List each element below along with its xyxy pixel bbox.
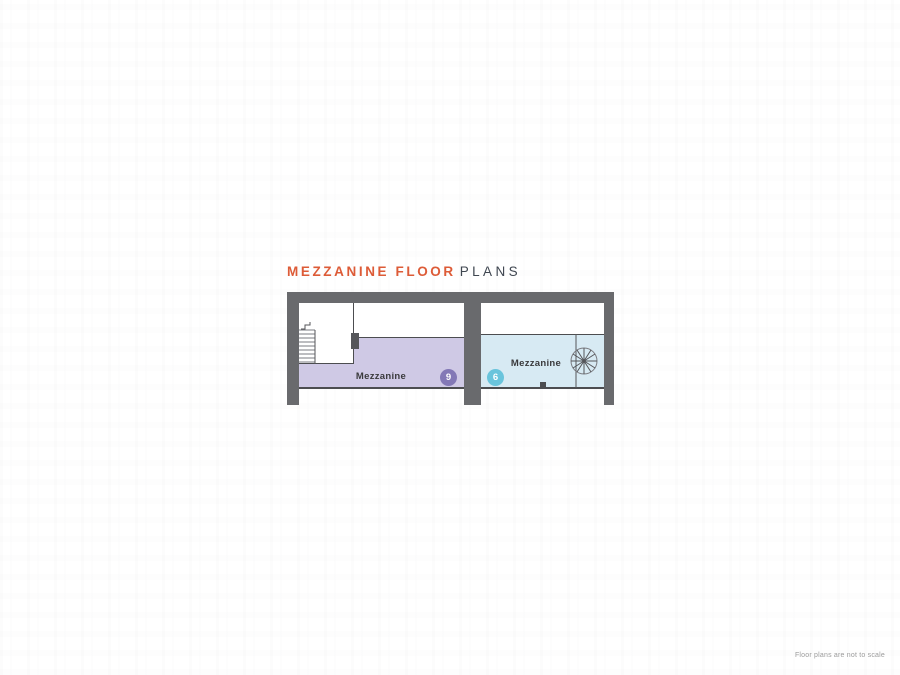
wall-top — [287, 292, 614, 303]
room-label-left: Mezzanine — [340, 371, 422, 382]
unit-badge-right: 6 — [487, 369, 504, 386]
door-nib — [540, 382, 546, 388]
page-title-primary: MEZZANINE FLOOR — [287, 264, 456, 279]
page-root: MEZZANINE FLOORPLANS — [0, 0, 900, 675]
page-title-secondary: PLANS — [460, 264, 521, 279]
wall-right — [604, 292, 614, 405]
scale-disclaimer: Floor plans are not to scale — [795, 652, 885, 659]
page-title: MEZZANINE FLOORPLANS — [287, 264, 521, 280]
floor-edge-left — [299, 387, 464, 389]
straight-staircase-icon — [298, 320, 318, 366]
wall-stub — [351, 333, 359, 349]
wall-middle — [464, 292, 481, 405]
room-label-right: Mezzanine — [495, 358, 577, 369]
unit-badge-left: 9 — [440, 369, 457, 386]
